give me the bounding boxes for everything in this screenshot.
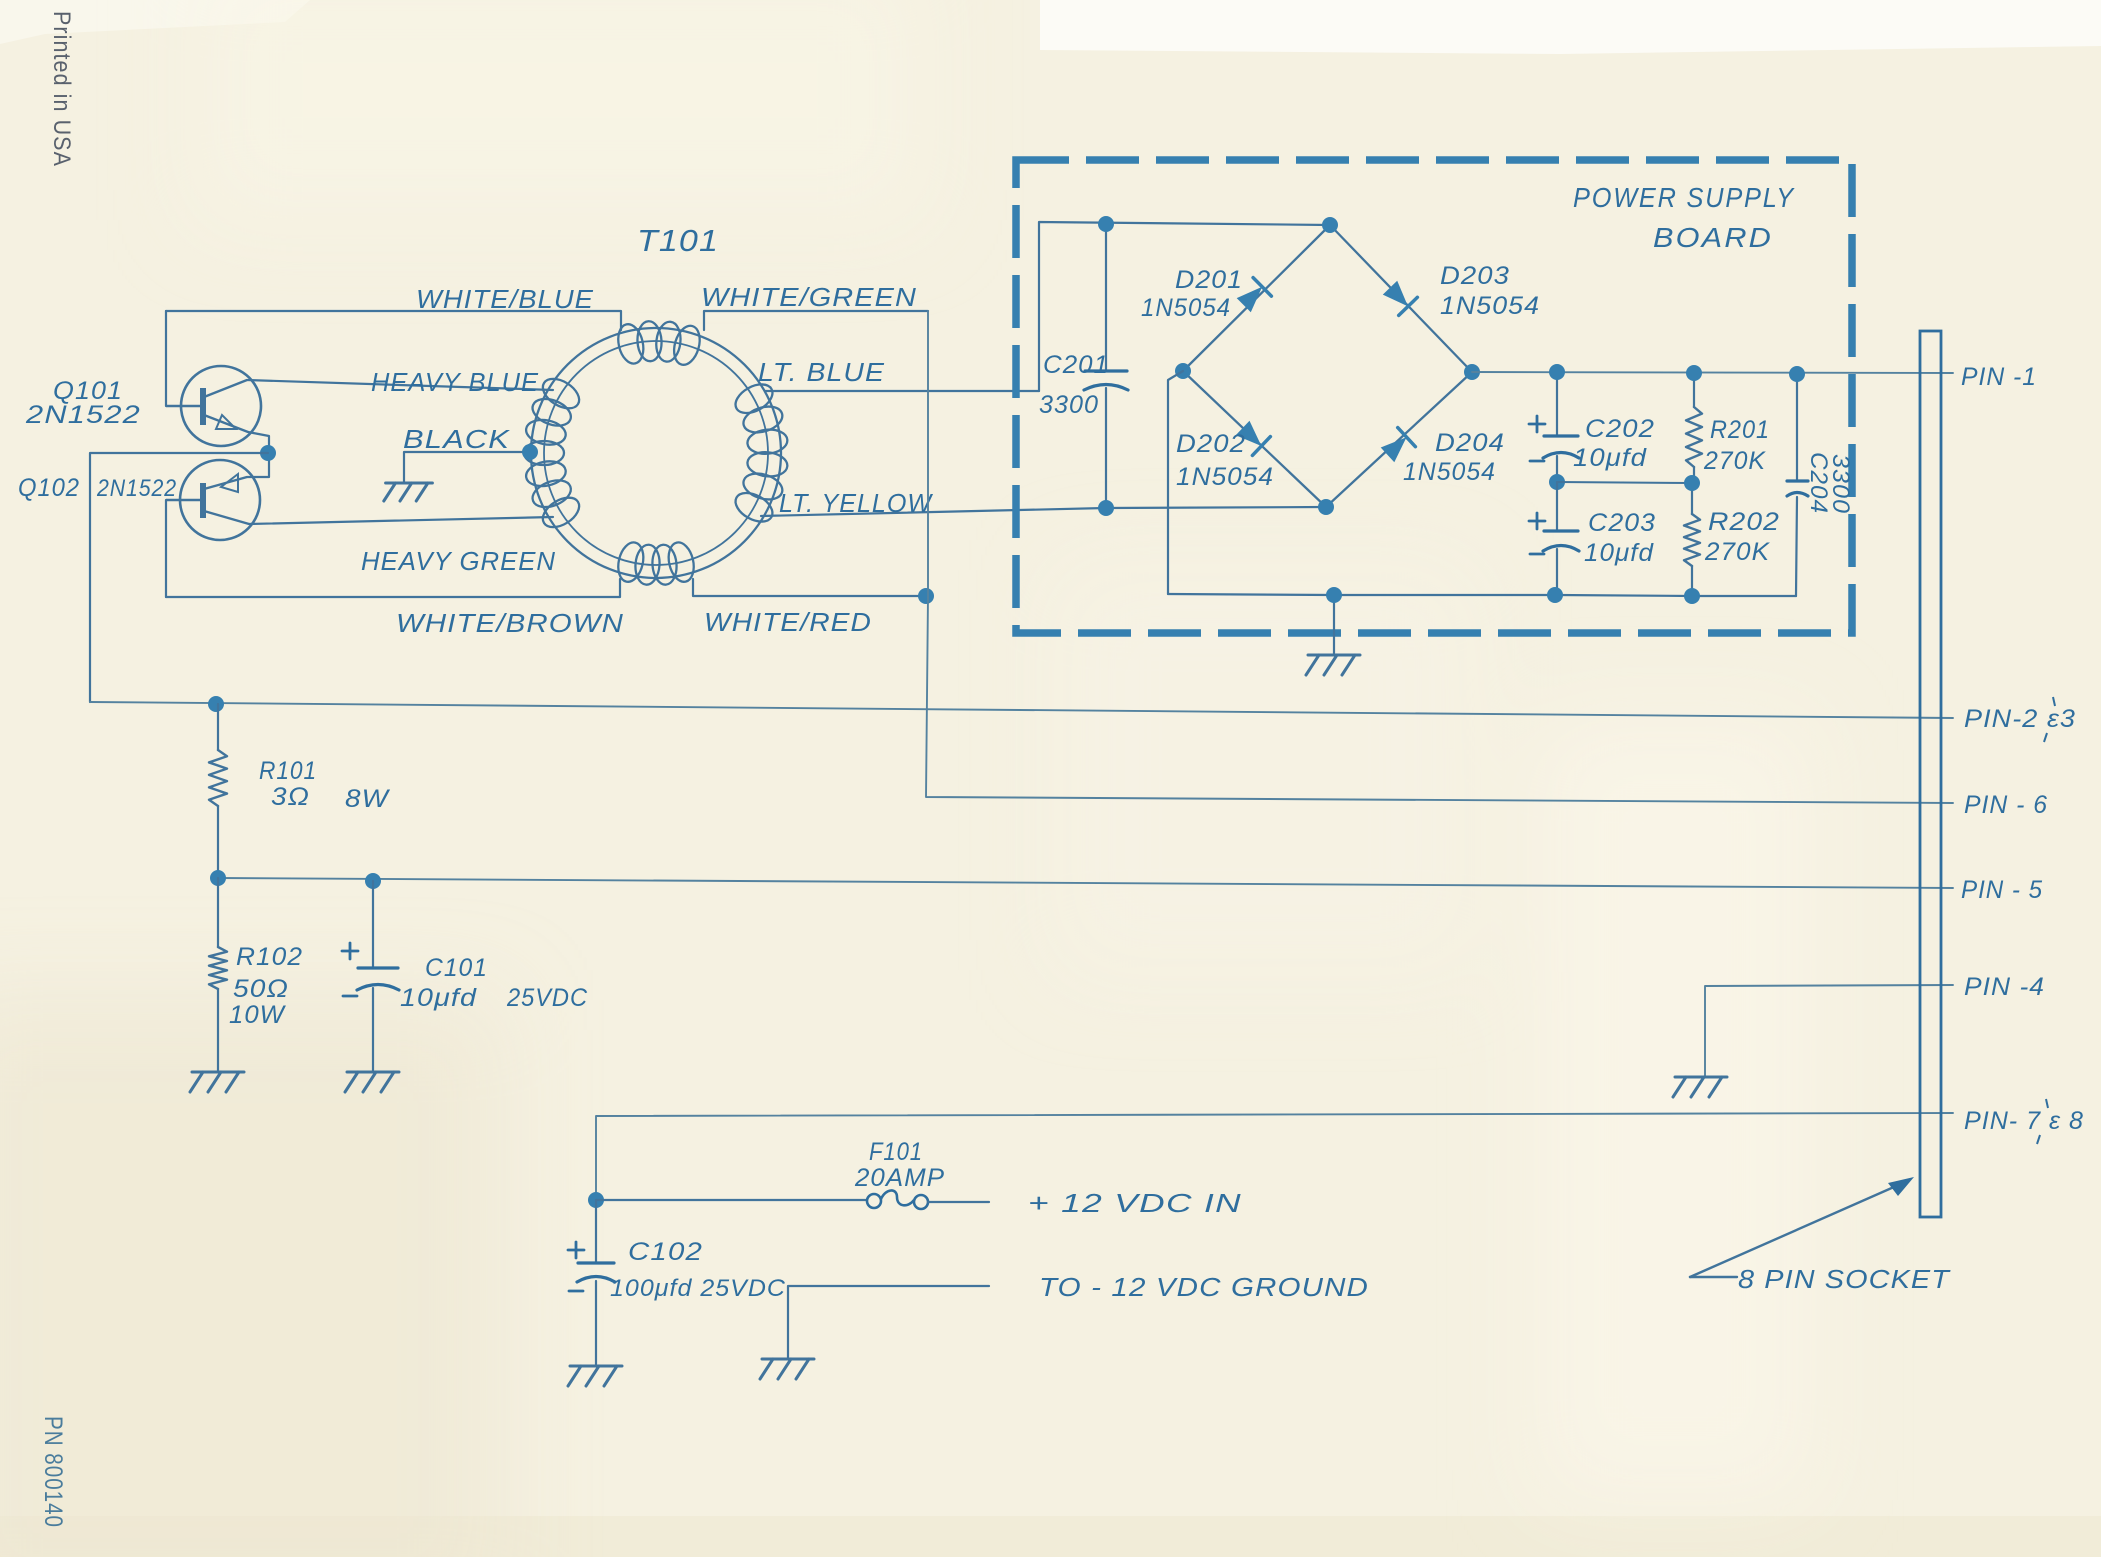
svg-text:WHITE/RED: WHITE/RED [704, 607, 872, 637]
svg-text:1N5054: 1N5054 [1403, 458, 1496, 486]
svg-text:BOARD: BOARD [1653, 222, 1773, 253]
svg-text:R202: R202 [1708, 508, 1780, 536]
svg-text:1N5054: 1N5054 [1440, 292, 1540, 320]
svg-text:1N5054: 1N5054 [1141, 294, 1231, 322]
svg-text:R101: R101 [259, 757, 317, 785]
svg-text:2N1522: 2N1522 [96, 475, 177, 502]
svg-text:R201: R201 [1710, 416, 1770, 444]
svg-text:LT. YELLOW: LT. YELLOW [779, 488, 933, 518]
svg-text:100μfd 25VDC: 100μfd 25VDC [610, 1275, 786, 1302]
svg-text:3300: 3300 [1039, 391, 1099, 419]
svg-text:C102: C102 [628, 1238, 703, 1266]
svg-text:TO - 12 VDC GROUND: TO - 12 VDC GROUND [1039, 1272, 1369, 1302]
svg-text:D202: D202 [1176, 430, 1246, 458]
svg-text:PIN -4: PIN -4 [1964, 973, 2045, 1001]
svg-text:HEAVY GREEN: HEAVY GREEN [361, 546, 556, 576]
svg-text:HEAVY BLUE: HEAVY BLUE [371, 367, 539, 397]
svg-text:D203: D203 [1440, 262, 1510, 290]
svg-text:3Ω: 3Ω [271, 783, 310, 811]
svg-text:+ 12 VDC IN: + 12 VDC IN [1028, 1188, 1242, 1218]
svg-text:Q102: Q102 [18, 474, 80, 502]
svg-text:2N1522: 2N1522 [25, 401, 141, 429]
svg-text:10μfd: 10μfd [1573, 444, 1647, 472]
svg-text:C202: C202 [1585, 415, 1655, 443]
svg-text:10μfd: 10μfd [400, 984, 477, 1012]
svg-text:270K: 270K [1704, 538, 1770, 566]
svg-text:D201: D201 [1175, 266, 1243, 294]
svg-text:C201: C201 [1043, 351, 1109, 379]
svg-text:25VDC: 25VDC [506, 984, 588, 1012]
svg-text:8W: 8W [345, 785, 391, 813]
svg-text:1N5054: 1N5054 [1176, 463, 1274, 491]
svg-text:20AMP: 20AMP [854, 1164, 945, 1192]
svg-text:C101: C101 [425, 954, 488, 982]
svg-text:8 PIN SOCKET: 8 PIN SOCKET [1738, 1264, 1951, 1294]
svg-text:LT. BLUE: LT. BLUE [758, 357, 885, 387]
svg-text:WHITE/BROWN: WHITE/BROWN [396, 608, 624, 638]
svg-text:C203: C203 [1588, 509, 1656, 537]
svg-text:PIN - 5: PIN - 5 [1961, 876, 2043, 904]
svg-text:POWER SUPPLY: POWER SUPPLY [1573, 182, 1795, 213]
svg-text:BLACK: BLACK [403, 424, 511, 454]
svg-text:PIN -1: PIN -1 [1961, 363, 2037, 391]
svg-text:D204: D204 [1435, 429, 1505, 457]
svg-text:PIN-2 ε3: PIN-2 ε3 [1964, 705, 2076, 733]
svg-text:Printed in USA: Printed in USA [48, 11, 75, 167]
svg-text:50Ω: 50Ω [233, 975, 289, 1003]
svg-text:R102: R102 [236, 943, 303, 971]
svg-text:WHITE/BLUE: WHITE/BLUE [416, 284, 594, 314]
svg-text:F101: F101 [869, 1138, 923, 1166]
svg-text:WHITE/GREEN: WHITE/GREEN [701, 282, 917, 312]
svg-text:10W: 10W [229, 1001, 286, 1029]
svg-text:T101: T101 [637, 223, 719, 258]
svg-text:270K: 270K [1703, 447, 1766, 475]
svg-text:PN 800140: PN 800140 [39, 1416, 67, 1528]
svg-text:3300: 3300 [1827, 454, 1854, 514]
svg-text:PIN- 7 ε 8: PIN- 7 ε 8 [1964, 1107, 2084, 1135]
svg-text:10μfd: 10μfd [1584, 539, 1654, 567]
svg-text:PIN - 6: PIN - 6 [1964, 791, 2048, 819]
